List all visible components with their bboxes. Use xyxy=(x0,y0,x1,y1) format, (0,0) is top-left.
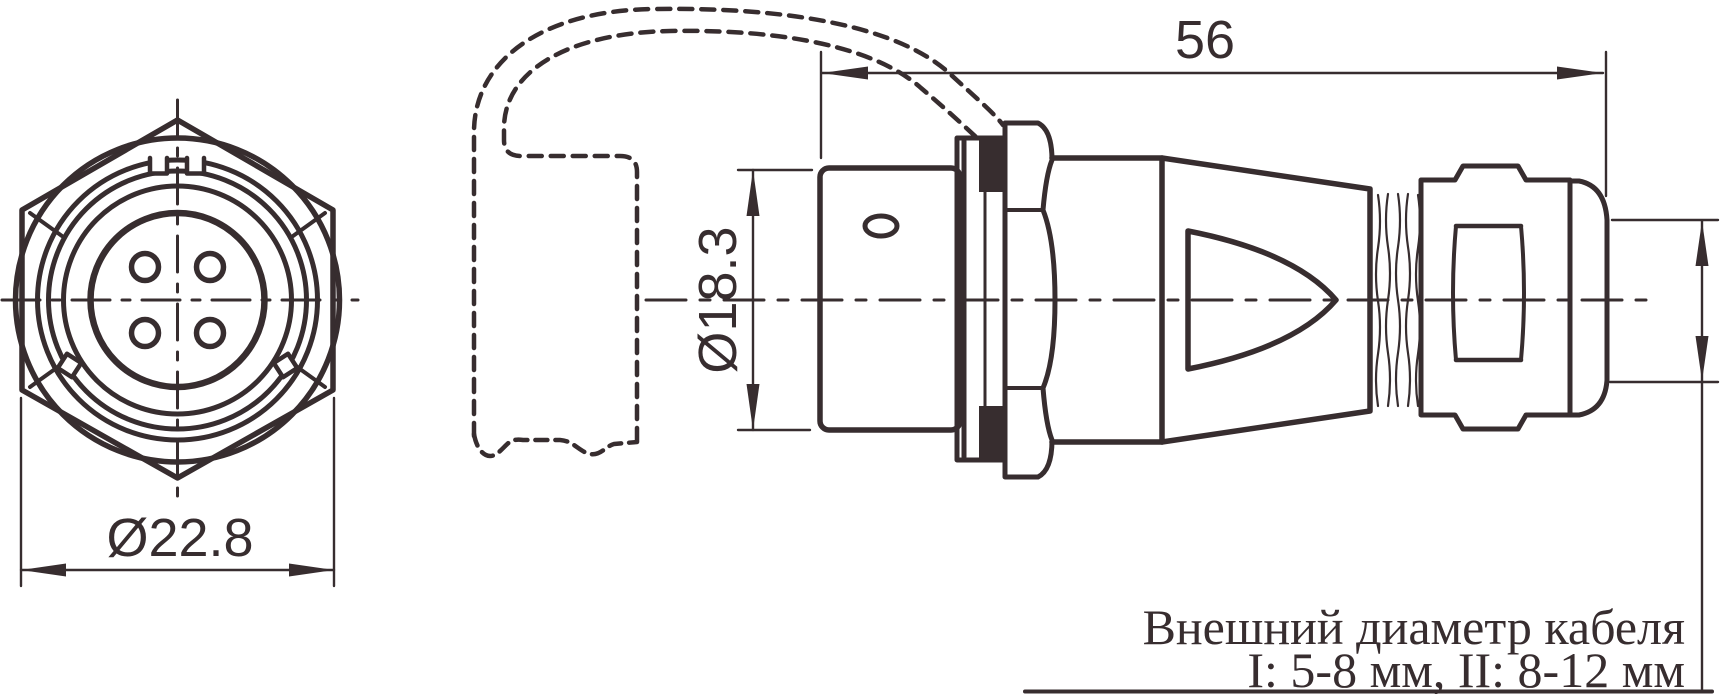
front-diameter-label: Ø22.8 xyxy=(106,508,253,568)
technical-drawing-page: Ø22.8 xyxy=(0,0,1720,694)
gland-end-cap xyxy=(1570,181,1607,415)
cable-diameter-note: Внешний диаметр кабеля I: 5-8 мм, II: 8-… xyxy=(1025,599,1712,694)
side-view: 56 Ø18.3 xyxy=(646,10,1718,691)
barrel-diameter-label: Ø18.3 xyxy=(688,226,748,373)
length-dimension-label: 56 xyxy=(1175,10,1235,70)
phantom-cable-break-line xyxy=(474,434,637,456)
gland-nut xyxy=(1421,166,1570,429)
dimension-56 xyxy=(821,52,1606,196)
connector-drawing: Ø22.8 xyxy=(0,0,1720,694)
front-view: Ø22.8 xyxy=(2,100,358,586)
note-line-2: I: 5-8 мм, II: 8-12 мм xyxy=(1247,642,1685,694)
barrel-vent-hole xyxy=(865,216,897,236)
gasket-bottom xyxy=(979,406,1005,460)
gasket-top xyxy=(979,140,1005,192)
